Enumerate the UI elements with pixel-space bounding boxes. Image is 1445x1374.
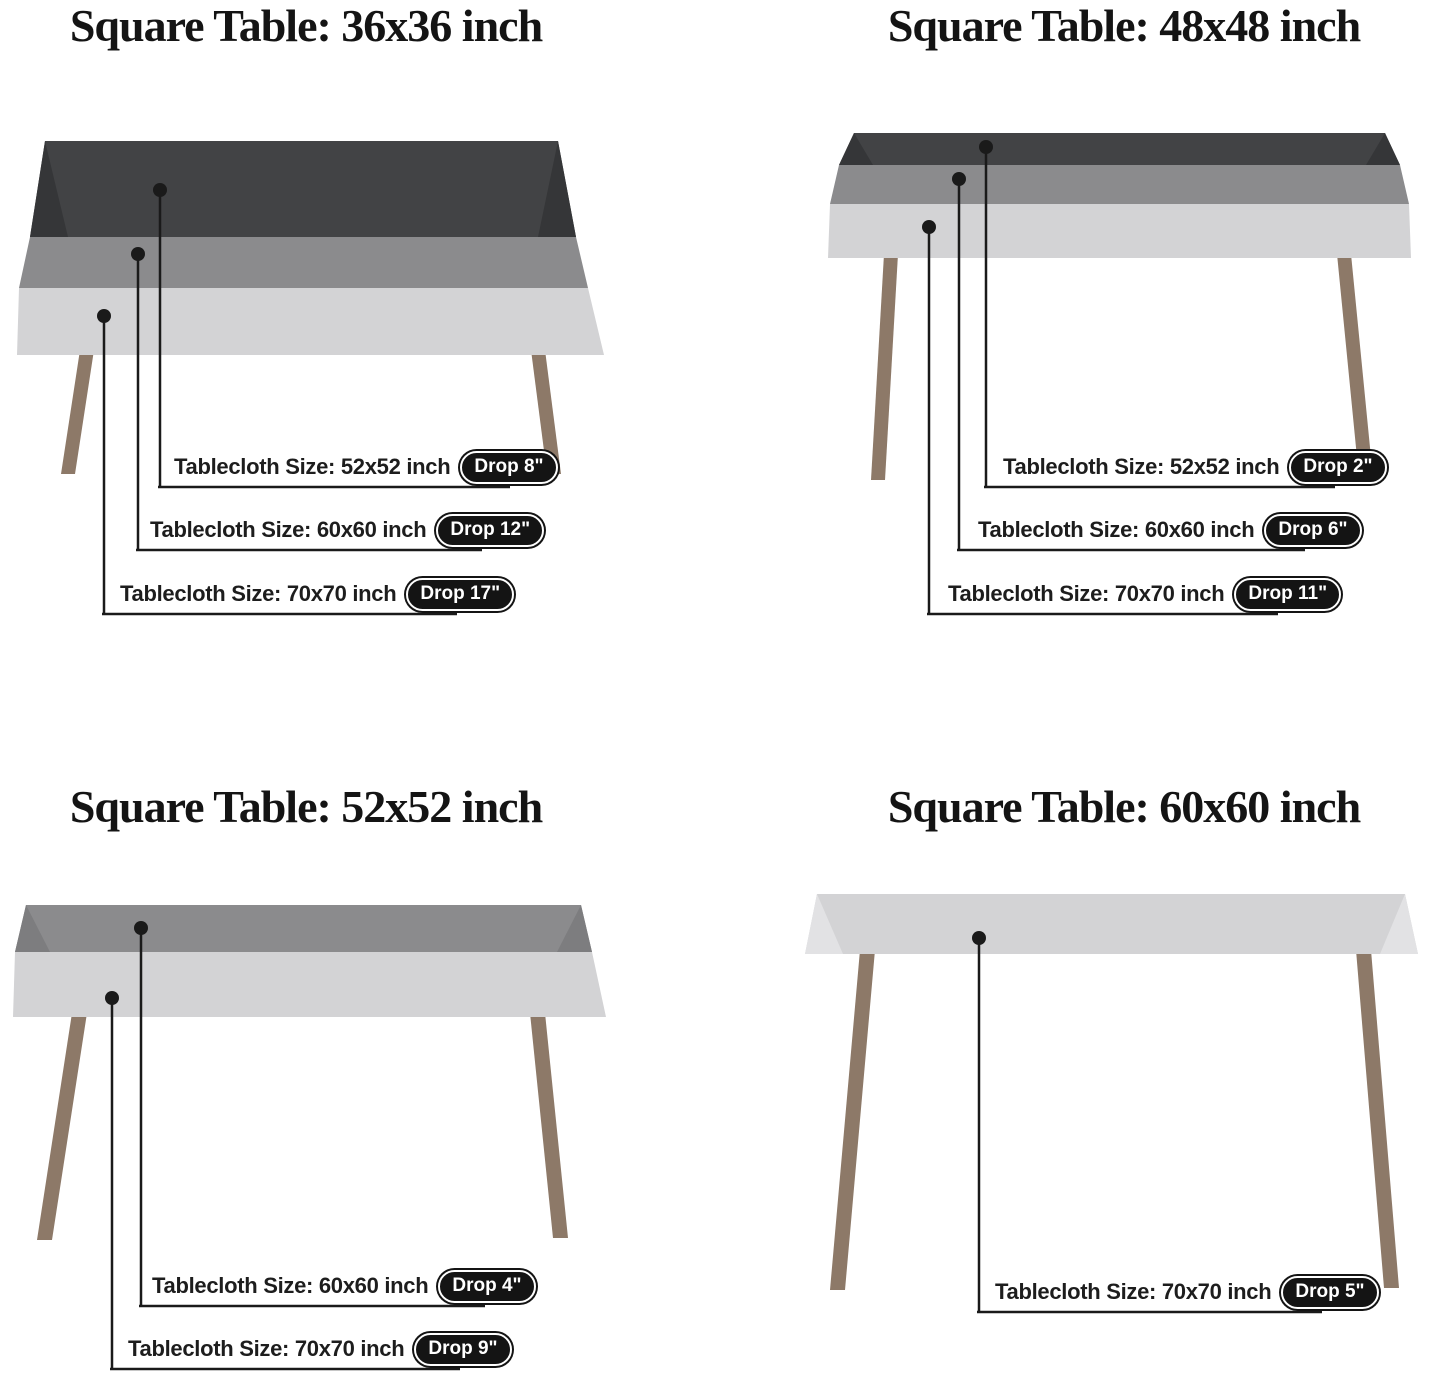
size-callout: Tablecloth Size: 60x60 inch Drop 4" <box>152 1268 536 1304</box>
drop-badge: Drop 6" <box>1264 514 1361 547</box>
table-leg-left <box>830 950 875 1290</box>
table-leg-right <box>530 1013 568 1238</box>
size-callout: Tablecloth Size: 60x60 inch Drop 12" <box>150 512 544 548</box>
tablecloth-size-text: Tablecloth Size: 60x60 inch <box>152 1273 428 1299</box>
tablecloth-size-text: Tablecloth Size: 70x70 inch <box>995 1279 1271 1305</box>
tablecloth-size-text: Tablecloth Size: 70x70 inch <box>128 1336 404 1362</box>
tablecloth-60x60-layer <box>19 237 588 288</box>
drop-badge: Drop 9" <box>414 1333 511 1366</box>
drop-badge: Drop 17" <box>406 578 514 611</box>
tablecloth-70x70-layer <box>828 204 1411 258</box>
callout-dot <box>97 309 111 323</box>
drop-badge: Drop 8" <box>460 451 557 484</box>
callout-dot <box>131 247 145 261</box>
size-callout: Tablecloth Size: 70x70 inch Drop 17" <box>120 576 514 612</box>
callout-dot <box>952 172 966 186</box>
size-callout: Tablecloth Size: 70x70 inch Drop 11" <box>948 576 1341 612</box>
tablecloth-size-text: Tablecloth Size: 70x70 inch <box>120 581 396 607</box>
panel-36x36: Square Table: 36x36 inch Tablecloth Size… <box>0 0 722 687</box>
table-leg-left <box>37 1013 87 1240</box>
size-callout: Tablecloth Size: 70x70 inch Drop 5" <box>995 1274 1379 1310</box>
drop-badge: Drop 12" <box>436 514 544 547</box>
tablecloth-70x70-layer <box>13 952 606 1017</box>
tablecloth-size-text: Tablecloth Size: 60x60 inch <box>150 517 426 543</box>
panel-48x48: Square Table: 48x48 inch Tablecloth Size… <box>723 0 1445 687</box>
callout-dot <box>972 931 986 945</box>
size-callout: Tablecloth Size: 52x52 inch Drop 2" <box>1003 449 1387 485</box>
callout-dot <box>979 140 993 154</box>
callout-line <box>110 998 460 1369</box>
size-callout: Tablecloth Size: 52x52 inch Drop 8" <box>174 449 558 485</box>
callout-dot <box>153 183 167 197</box>
table-leg-right <box>1337 254 1373 478</box>
table-leg-left <box>61 350 94 474</box>
drop-badge: Drop 2" <box>1289 451 1386 484</box>
tablecloth-52x52-layer <box>30 141 576 237</box>
tablecloth-size-text: Tablecloth Size: 60x60 inch <box>978 517 1254 543</box>
table-leg-left <box>871 254 898 480</box>
drop-badge: Drop 5" <box>1281 1276 1378 1309</box>
tablecloth-60x60-layer <box>830 165 1409 204</box>
drop-badge: Drop 11" <box>1234 578 1341 611</box>
size-callout: Tablecloth Size: 60x60 inch Drop 6" <box>978 512 1362 548</box>
callout-dot <box>922 220 936 234</box>
callout-line <box>977 938 1322 1312</box>
tablecloth-60x60-layer <box>15 905 592 952</box>
tablecloth-52x52-layer <box>839 133 1400 165</box>
panel-60x60: Square Table: 60x60 inch Tablecloth Size… <box>723 687 1445 1374</box>
table-illustration-60x60 <box>723 687 1445 1374</box>
tablecloth-size-text: Tablecloth Size: 52x52 inch <box>174 454 450 480</box>
drop-badge: Drop 4" <box>438 1270 535 1303</box>
tablecloth-size-text: Tablecloth Size: 70x70 inch <box>948 581 1224 607</box>
table-leg-right <box>1356 950 1399 1288</box>
tablecloth-size-text: Tablecloth Size: 52x52 inch <box>1003 454 1279 480</box>
panel-52x52: Square Table: 52x52 inch Tablecloth Size… <box>0 687 722 1374</box>
callout-line <box>927 227 1278 614</box>
callout-dot <box>105 991 119 1005</box>
tablecloth-70x70-layer <box>805 894 1418 954</box>
callout-dot <box>134 921 148 935</box>
size-callout: Tablecloth Size: 70x70 inch Drop 9" <box>128 1331 512 1367</box>
